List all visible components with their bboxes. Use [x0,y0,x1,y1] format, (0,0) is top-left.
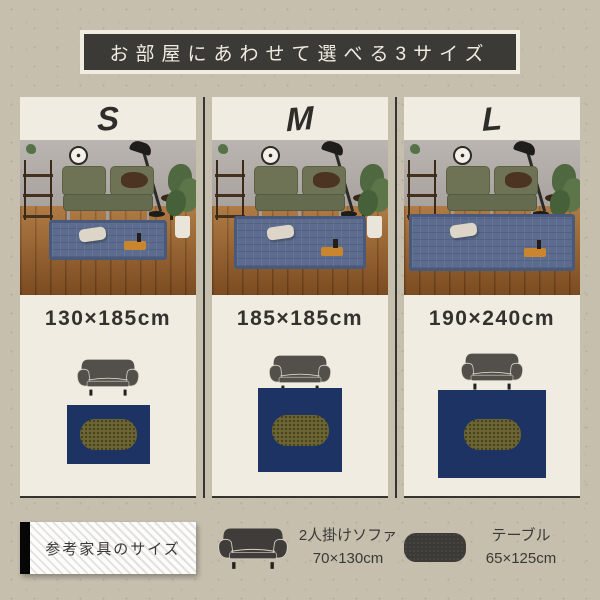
room-photo-m [212,140,388,295]
legend-black-bar [20,522,30,574]
blanket [121,172,148,188]
shelf-rack [215,160,245,220]
room-photo-s [20,140,196,295]
sofa-icon [267,353,333,393]
table-icon [464,419,521,450]
legend-table-icon [404,533,466,562]
wall-clock [69,146,88,165]
rug-diagram [258,388,342,472]
potted-plant [358,164,388,222]
table-icon [272,415,329,446]
tray [524,248,546,257]
sofa-size: 70×130cm [292,548,404,571]
legend-sofa-icon [216,519,290,577]
legend-table-text: テーブル 65×125cm [462,525,580,570]
layout-diagram-l [404,343,580,496]
size-letter-l: L [404,97,580,140]
sofa-photo [62,166,154,226]
header-banner: お部屋にあわせて選べる3サイズ [80,30,520,74]
column-divider [395,97,397,498]
shelf-rack [23,160,53,220]
legend-sofa-text: 2人掛けソファ 70×130cm [292,525,404,570]
tray [124,241,146,250]
size-letter-s: S [20,97,196,140]
potted-plant [166,164,196,222]
cushion [266,224,295,241]
legend: 参考家具のサイズ 2人掛けソファ 70×130cm テーブル 65×125cm [0,515,600,590]
wall-clock [261,146,280,165]
header-title: お部屋にあわせて選べる3サイズ [110,39,491,66]
rug-diagram [438,390,546,478]
rug-dimension-s: 130×185cm [20,295,196,343]
sofa-icon [75,357,141,397]
rug-dimension-m: 185×185cm [212,295,388,343]
sofa-icon [459,351,525,391]
legend-striped-box: 参考家具のサイズ [30,522,196,574]
tray [321,247,343,256]
legend-title-box: 参考家具のサイズ [20,522,196,574]
cushion [450,222,479,239]
sofa-name: 2人掛けソファ [292,525,404,548]
plant-pot [367,216,382,238]
rug-dimension-l: 190×240cm [404,295,580,343]
rug-photo [234,216,366,269]
rug-diagram [67,405,150,464]
blanket [313,172,340,188]
size-columns: S 130×185cm [20,97,580,498]
blanket [505,172,532,188]
table-icon [80,419,137,450]
size-column: S 130×185cm [20,97,196,498]
column-divider [203,97,205,498]
size-column: M 185×185cm [212,97,388,498]
rug-photo [49,220,167,260]
layout-diagram-s [20,343,196,496]
rug-photo [409,214,575,271]
shelf-rack [407,160,437,220]
layout-diagram-m [212,343,388,496]
plant-pot [175,216,190,238]
small-plant [26,144,36,154]
small-plant [218,144,228,154]
table-size: 65×125cm [462,548,580,571]
room-photo-l [404,140,580,295]
size-column: L 190×240cm [404,97,580,498]
size-letter-m: M [212,97,388,140]
small-plant [410,144,420,154]
cushion [78,226,107,243]
wall-clock [453,146,472,165]
table-name: テーブル [462,525,580,548]
